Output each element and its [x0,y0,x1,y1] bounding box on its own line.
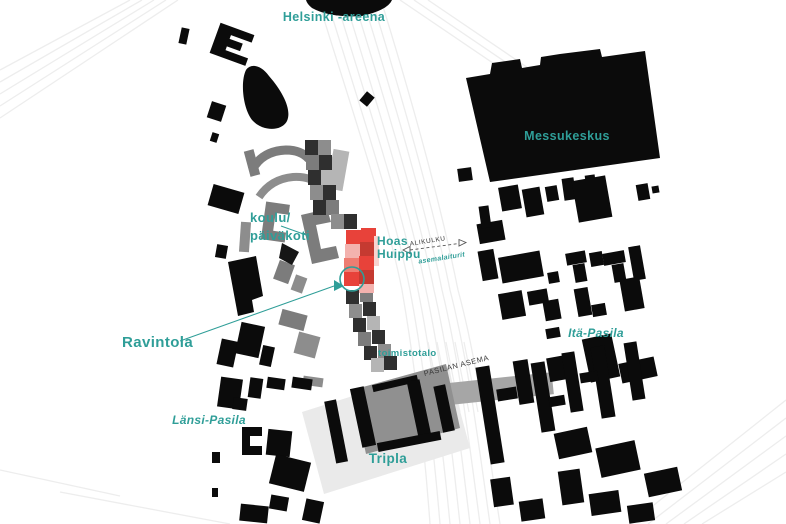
building [215,244,228,259]
rail-line [0,0,178,118]
rail-line [0,0,154,94]
label-helsinki-areena: Helsinki -areena [283,10,386,24]
strip-cell [308,170,321,185]
strip-cell [326,200,339,215]
building [545,327,561,339]
hoas-tower-cell [361,228,376,242]
building [269,495,289,512]
strip-cell [310,185,323,200]
building [627,502,655,523]
strip-cell [331,214,344,229]
building [589,490,622,516]
building [554,427,593,460]
building [178,27,189,44]
building [259,345,275,367]
label-ravintola: Ravintola [122,334,193,351]
rail-line [0,0,166,106]
building [573,263,588,283]
building [212,488,218,497]
building [595,440,640,478]
hoas-tower-cell [345,244,360,258]
rail-line [666,436,786,524]
strip-cell [371,358,384,372]
building [636,183,651,201]
rail-line [60,492,230,524]
building [232,397,248,411]
building [542,299,561,321]
rail-line [702,472,786,524]
messukeskus-building [466,49,660,182]
building [548,395,565,407]
label-lansi-pasila: Länsi-Pasila [172,413,246,427]
strip-cell [344,214,357,229]
building [572,175,613,222]
strip-cell [318,140,331,155]
label-toimistotalo: toimistotalo [378,348,437,359]
hoas-tower-cell [344,272,359,286]
building [619,277,644,312]
label-hoas: Hoas [377,234,408,248]
building [574,287,593,317]
tripla-complex [302,364,554,494]
building [210,132,219,143]
building [558,469,585,506]
building [628,245,646,281]
building [476,220,505,244]
building [522,187,545,218]
hoas-tower-cell [344,258,359,272]
building [498,184,522,211]
label-huippu: Huippu [377,247,421,261]
hoas-tower-cell [359,256,374,270]
strip-cell [364,346,377,360]
strip-cell [319,155,332,170]
label-koulu: koulu/ [250,210,291,225]
building [266,429,293,457]
strip-cell [323,185,336,200]
strip-cell [346,290,359,304]
strip-cell [349,304,362,318]
building [212,452,220,463]
strip-cell [305,140,318,155]
building [208,184,245,214]
strip-cell [363,302,376,316]
building [302,498,324,523]
blob-building [243,66,288,129]
rail-line [684,454,786,524]
rail-line [630,400,786,524]
building [589,251,604,267]
strip-cell [372,330,385,344]
building [478,249,499,281]
building [266,377,285,390]
strip-cell [353,318,366,332]
building [457,167,473,182]
c-shape-building [242,427,262,455]
building-gray [278,309,307,331]
label-messukeskus: Messukeskus [524,129,610,143]
strip-cell [367,316,380,330]
building-gray [294,332,321,359]
building [651,185,659,193]
strip-cell [313,200,326,215]
strip-cell [321,170,334,185]
hoas-tower-cell [360,242,375,256]
building [207,101,227,122]
building [545,185,559,202]
building [269,454,311,492]
building-gray [291,274,308,293]
rail-line [0,0,142,82]
arrow-right-icon [459,240,466,247]
development-strip-lower [346,288,397,372]
street-block-building [228,256,263,316]
site-plan-page: Helsinki -areena Messukeskus koulu/ päiv… [0,0,786,524]
site-plan-map: Helsinki -areena Messukeskus koulu/ päiv… [0,0,786,524]
building [359,91,374,107]
building [591,303,607,317]
building [547,271,560,284]
building [498,290,526,320]
building [644,467,682,498]
building [519,498,546,521]
label-tripla: Tripla [369,451,408,466]
building [490,477,514,508]
building [239,504,269,524]
label-ita-pasila: Itä-Pasila [568,326,624,340]
housing-arc-building [252,150,309,170]
hoas-huippu-tower [344,228,379,293]
comb-building [210,23,257,66]
label-paivakoti: päiväkoti [250,228,310,243]
strip-cell [306,155,319,170]
building [498,251,544,284]
strip-cell [358,332,371,346]
hoas-tower-cell [346,230,361,244]
building [235,322,265,358]
building [248,377,264,399]
